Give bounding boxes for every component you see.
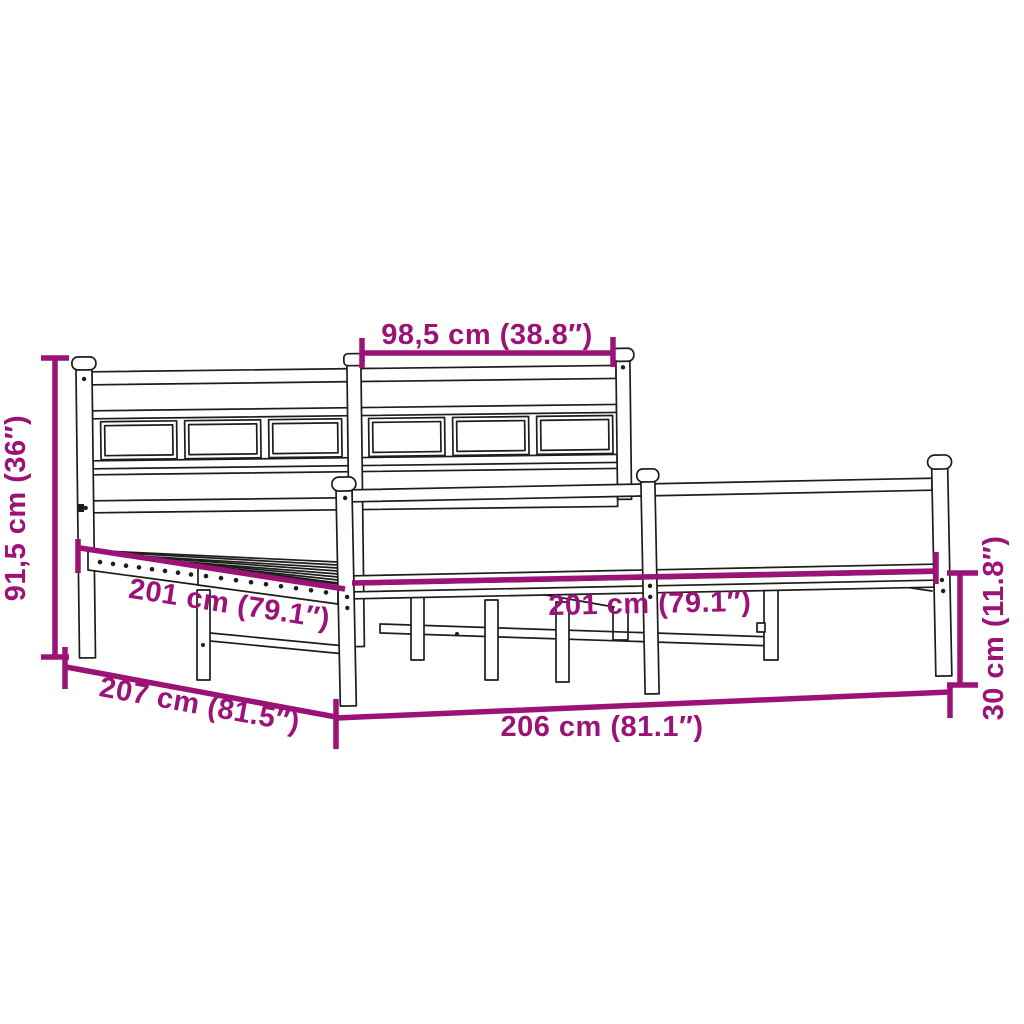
headboard-right-post	[616, 359, 632, 499]
dim-label-frame-height: 30 cm (11.8″)	[978, 536, 1010, 721]
dim-label-overall-width: 206 cm (81.1″)	[500, 711, 703, 743]
finial-cap	[332, 477, 356, 491]
support-leg	[764, 588, 778, 660]
support-leg	[411, 596, 424, 660]
headboard-left-post	[76, 368, 96, 658]
product-dimension-diagram: 98,5 cm (38.8″) 91,5 cm (36″) 201 cm (79…	[0, 0, 1024, 1024]
support-leg	[485, 600, 498, 680]
dim-label-slat-length-right: 201 cm (79.1″)	[548, 586, 752, 622]
dim-label-headboard-width: 98,5 cm (38.8″)	[381, 319, 593, 351]
finial-cap	[72, 357, 96, 370]
finial-cap	[927, 455, 951, 469]
bed-frame-line-drawing: 98,5 cm (38.8″) 91,5 cm (36″) 201 cm (79…	[0, 0, 1024, 1024]
finial-cap	[637, 469, 659, 482]
dim-label-headboard-height: 91,5 cm (36″)	[0, 415, 32, 601]
